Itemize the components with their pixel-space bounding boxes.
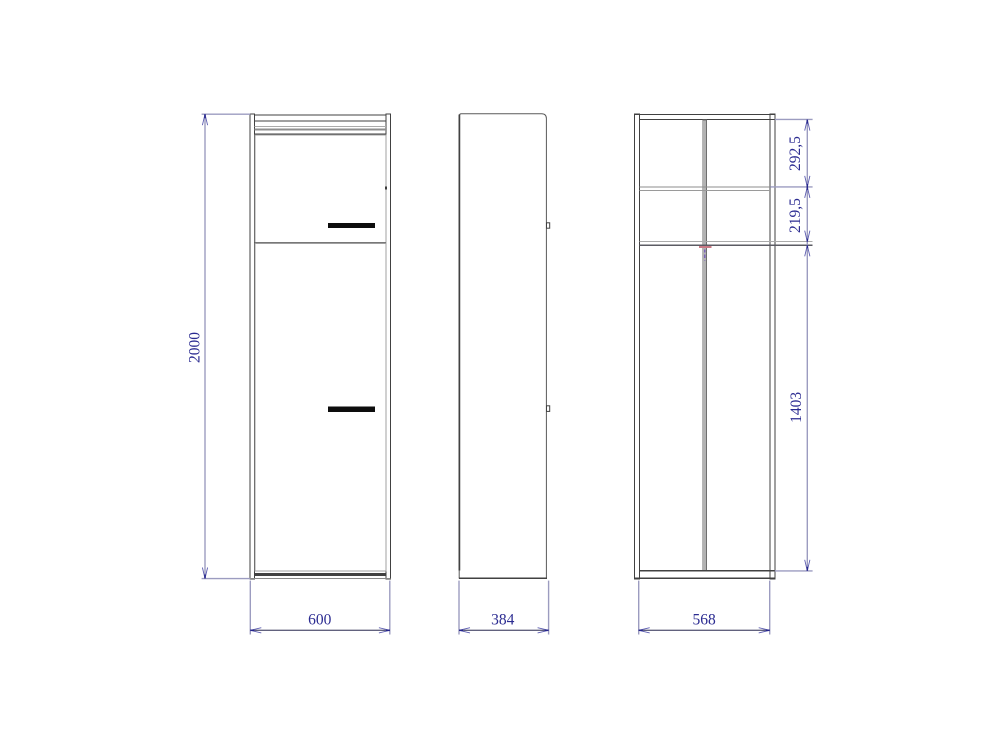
svg-text:292,5: 292,5 xyxy=(787,136,804,171)
svg-text:219,5: 219,5 xyxy=(787,198,804,233)
svg-text:568: 568 xyxy=(692,612,716,629)
svg-text:1403: 1403 xyxy=(788,392,805,423)
svg-text:600: 600 xyxy=(308,612,332,629)
svg-text:2000: 2000 xyxy=(186,332,203,363)
svg-text:384: 384 xyxy=(491,612,515,629)
